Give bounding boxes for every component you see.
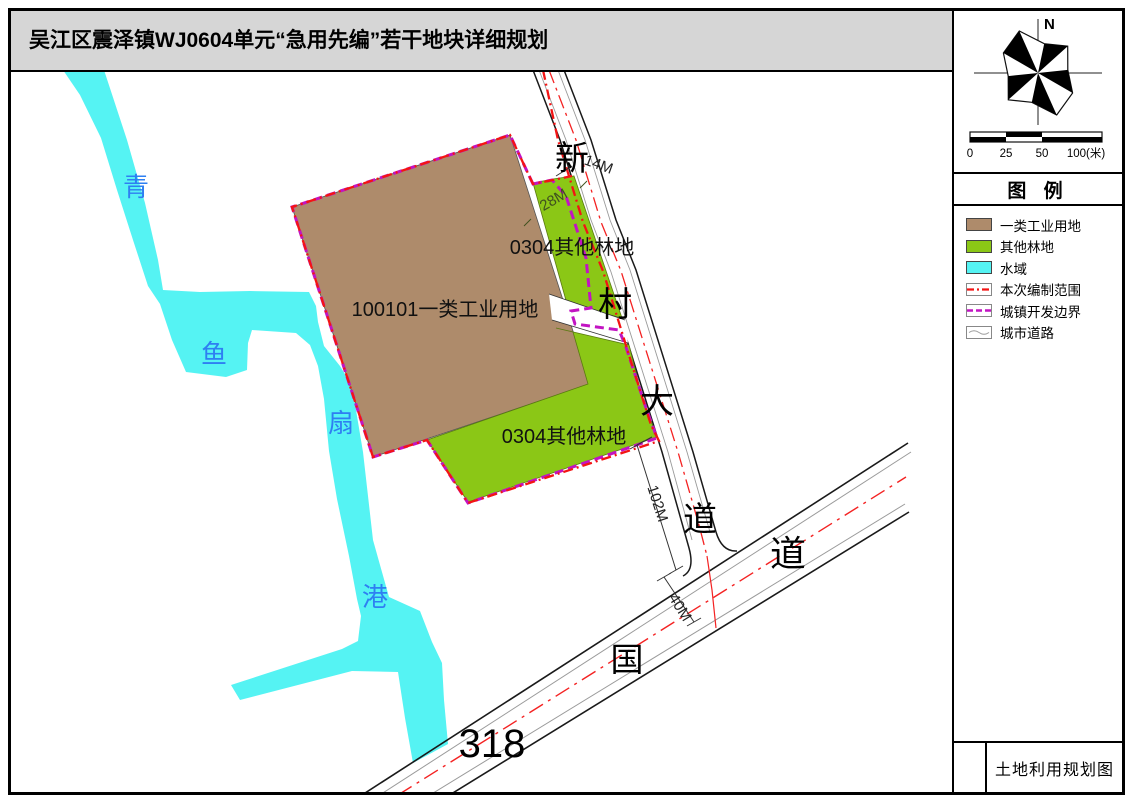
industrial-parcel-label: 100101一类工业用地 — [352, 298, 539, 321]
legend-item-water: 水域 — [966, 257, 1122, 279]
legend-item-urban-road: 城市道路 — [966, 322, 1122, 344]
legend-item-development-boundary: 城镇开发边界 — [966, 300, 1122, 322]
sidebar: N 0 25 50 100(米) 图 例 一类工业用地 — [952, 11, 1122, 792]
legend-list: 一类工业用地 其他林地 水域 本次编制范围 — [954, 206, 1122, 343]
scale-tick-100: 100(米) — [1067, 147, 1106, 160]
dimension-102m: 102M — [643, 483, 671, 524]
water-swatch — [966, 261, 992, 274]
scale-bar: 0 25 50 100(米) — [954, 129, 1122, 172]
page-title: 吴江区震泽镇WJ0604单元“急用先编”若干地块详细规划 — [11, 11, 952, 70]
industrial-swatch — [966, 218, 992, 231]
legend-item-label: 城市道路 — [1000, 322, 1054, 342]
svg-text:青: 青 — [123, 172, 149, 202]
svg-text:新: 新 — [555, 140, 589, 178]
scale-tick-0: 0 — [967, 148, 973, 160]
svg-text:港: 港 — [362, 582, 388, 612]
svg-text:国: 国 — [611, 641, 644, 678]
compass-rose: N — [960, 11, 1116, 129]
title-block: 土地利用规划图 — [954, 741, 1122, 792]
forest-lower-label: 0304其他林地 — [502, 425, 627, 448]
svg-text:扇: 扇 — [328, 408, 354, 438]
forest-upper-label: 0304其他林地 — [510, 236, 635, 259]
development-boundary-swatch — [966, 304, 992, 317]
legend-item-forest: 其他林地 — [966, 236, 1122, 258]
map-outer-border: 14M 28M 102M 40M 100101一类工业用地 0304其他林地 0… — [8, 8, 1125, 795]
legend-item-industrial: 一类工业用地 — [966, 214, 1122, 236]
scale-tick-50: 50 — [1036, 148, 1049, 160]
svg-text:大: 大 — [640, 383, 674, 421]
legend-item-label: 本次编制范围 — [1000, 279, 1081, 299]
legend-item-label: 城镇开发边界 — [1000, 301, 1081, 321]
road-guodao-name: 国 道 318 — [459, 533, 806, 766]
forest-swatch — [966, 240, 992, 253]
north-label: N — [1044, 16, 1055, 33]
title-block-empty-cell — [954, 743, 987, 792]
legend-item-label: 水域 — [1000, 258, 1027, 278]
title-bar: 吴江区震泽镇WJ0604单元“急用先编”若干地块详细规划 — [11, 11, 952, 72]
sidebar-spacer — [954, 343, 1122, 741]
legend-header: 图 例 — [954, 172, 1122, 206]
map-canvas: 14M 28M 102M 40M 100101一类工业用地 0304其他林地 0… — [11, 11, 955, 792]
svg-text:鱼: 鱼 — [201, 339, 227, 369]
compass-box: N — [954, 11, 1122, 129]
legend-item-label: 其他林地 — [1000, 236, 1054, 256]
svg-text:道: 道 — [770, 533, 806, 574]
legend-item-planning-scope: 本次编制范围 — [966, 279, 1122, 301]
svg-text:318: 318 — [459, 722, 526, 766]
scale-bar-graphic: 0 25 50 100(米) — [960, 129, 1116, 169]
svg-text:村: 村 — [598, 286, 632, 324]
drawing-title: 土地利用规划图 — [987, 743, 1122, 792]
planning-map-sheet: 14M 28M 102M 40M 100101一类工业用地 0304其他林地 0… — [0, 0, 1133, 803]
svg-text:道: 道 — [683, 501, 717, 539]
urban-road-swatch — [966, 326, 992, 339]
scale-tick-25: 25 — [1000, 148, 1013, 160]
planning-scope-swatch — [966, 283, 992, 296]
legend-item-label: 一类工业用地 — [1000, 215, 1081, 235]
